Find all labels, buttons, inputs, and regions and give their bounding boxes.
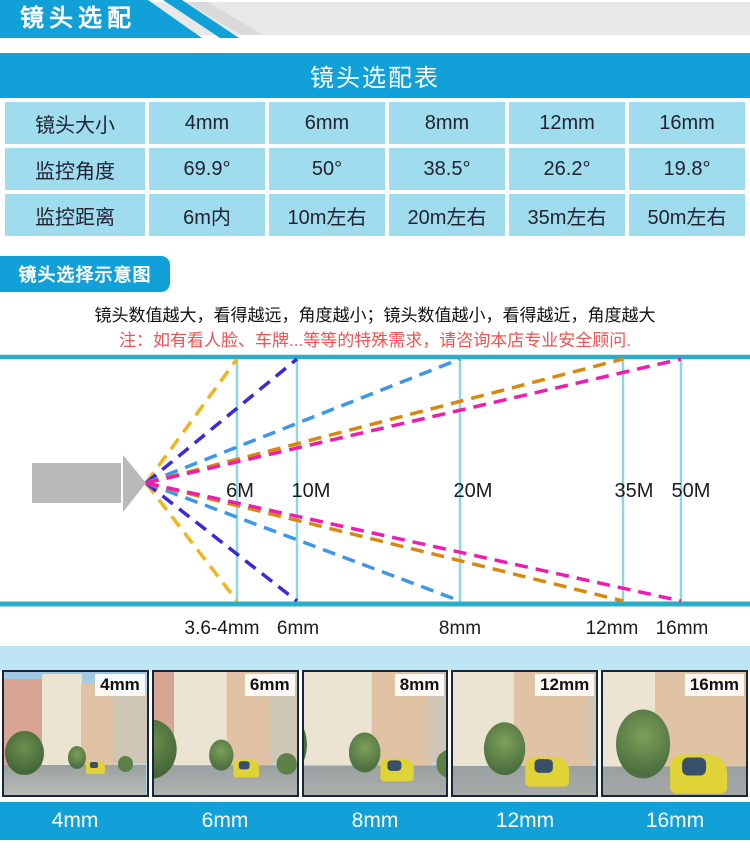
- lens-spec-table: 镜头大小 4mm 6mm 8mm 12mm 16mm 监控角度 69.9° 50…: [5, 102, 745, 236]
- camera-lens-cone: [123, 455, 146, 512]
- cell-lens-size-1: 4mm: [149, 102, 265, 144]
- sample-photo-4mm: 4mm: [2, 670, 149, 797]
- cell-distance-4: 35m左右: [509, 194, 625, 236]
- cell-distance-5: 50m左右: [629, 194, 745, 236]
- table-row-distance: 监控距离 6m内 10m左右 20m左右 35m左右 50m左右: [5, 194, 745, 236]
- bar-label-8mm: 8mm: [300, 802, 450, 840]
- footer-band: [0, 646, 750, 670]
- lens-label-3.6-4mm: 3.6-4mm: [185, 618, 260, 639]
- sample-photo-6mm: 6mm: [152, 670, 299, 797]
- sample-photo-strip: 4mm 6mm 8mm 12mm: [2, 670, 748, 797]
- photo-tag: 16mm: [685, 674, 744, 696]
- table-title: 镜头选配表: [0, 53, 750, 98]
- cell-angle-3: 38.5°: [389, 148, 505, 190]
- cell-distance-1: 6m内: [149, 194, 265, 236]
- cell-distance-2: 10m左右: [269, 194, 385, 236]
- cell-angle-1: 69.9°: [149, 148, 265, 190]
- lens-label-6mm: 6mm: [277, 618, 319, 639]
- cell-angle-4: 26.2°: [509, 148, 625, 190]
- page-header-banner: 镜头选配: [0, 0, 750, 38]
- lens-label-12mm: 12mm: [586, 618, 639, 639]
- row-header-angle: 监控角度: [5, 148, 145, 190]
- bar-label-4mm: 4mm: [0, 802, 150, 840]
- cell-distance-3: 20m左右: [389, 194, 505, 236]
- cell-lens-size-3: 8mm: [389, 102, 505, 144]
- fan-line-12mm: [146, 359, 623, 601]
- sample-photo-16mm: 16mm: [601, 670, 748, 797]
- section-label-chip: 镜头选择示意图: [0, 256, 170, 292]
- cell-lens-size-2: 6mm: [269, 102, 385, 144]
- bar-label-16mm: 16mm: [600, 802, 750, 840]
- photo-tag: 8mm: [395, 674, 445, 696]
- fan-line-6mm: [146, 359, 297, 601]
- cell-angle-2: 50°: [269, 148, 385, 190]
- lens-label-16mm: 16mm: [656, 618, 709, 639]
- camera-body: [32, 463, 121, 503]
- cell-lens-size-5: 16mm: [629, 102, 745, 144]
- page-title: 镜头选配: [20, 4, 136, 34]
- fan-line-3.6-4mm: [146, 359, 237, 601]
- sample-photo-12mm: 12mm: [451, 670, 598, 797]
- distance-label-35m: 35M: [615, 480, 654, 502]
- lens-fov-diagram: 6M 10M 20M 35M 50M 3.6-4mm 6mm 8mm 12mm …: [0, 350, 750, 670]
- cell-lens-size-4: 12mm: [509, 102, 625, 144]
- distance-label-10m: 10M: [292, 480, 331, 502]
- photo-tag: 6mm: [245, 674, 295, 696]
- bottom-label-bar: 4mm 6mm 8mm 12mm 16mm: [0, 802, 750, 840]
- sample-photo-8mm: 8mm: [302, 670, 449, 797]
- note-line-red: 注：如有看人脸、车牌...等等的特殊需求，请咨询本店专业安全顾问.: [0, 326, 750, 351]
- cell-angle-5: 19.8°: [629, 148, 745, 190]
- lens-label-8mm: 8mm: [439, 618, 481, 639]
- photo-tag: 12mm: [535, 674, 594, 696]
- row-header-distance: 监控距离: [5, 194, 145, 236]
- bar-label-6mm: 6mm: [150, 802, 300, 840]
- row-header-lens-size: 镜头大小: [5, 102, 145, 144]
- note-line-black: 镜头数值越大，看得越远，角度越小；镜头数值越小，看得越近，角度越大: [0, 301, 750, 326]
- distance-label-6m: 6M: [226, 480, 254, 502]
- distance-label-20m: 20M: [454, 480, 493, 502]
- photo-tag: 4mm: [95, 674, 145, 696]
- table-row-lens-size: 镜头大小 4mm 6mm 8mm 12mm 16mm: [5, 102, 745, 144]
- distance-label-50m: 50M: [672, 480, 711, 502]
- bar-label-12mm: 12mm: [450, 802, 600, 840]
- table-row-angle: 监控角度 69.9° 50° 38.5° 26.2° 19.8°: [5, 148, 745, 190]
